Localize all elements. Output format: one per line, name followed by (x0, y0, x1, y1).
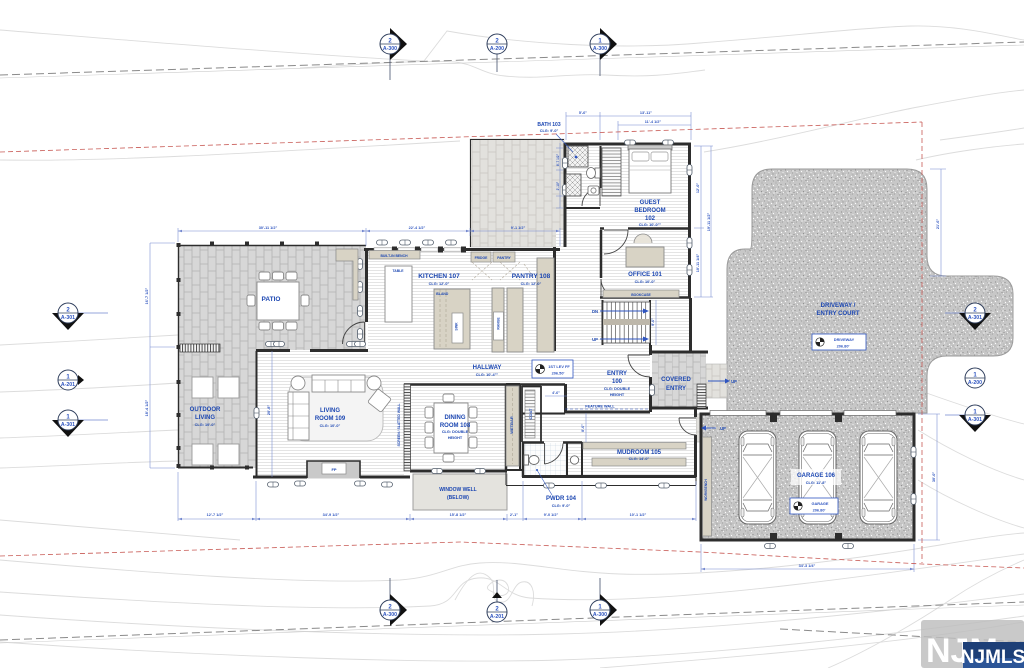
svg-text:206.50': 206.50' (552, 371, 565, 376)
svg-text:13'-11": 13'-11" (640, 111, 652, 115)
svg-text:A-300: A-300 (383, 46, 397, 52)
svg-text:UP: UP (592, 337, 598, 342)
svg-text:ISLAND: ISLAND (436, 292, 449, 296)
svg-text:FP: FP (331, 467, 336, 472)
svg-text:21'-6": 21'-6" (936, 219, 940, 230)
svg-text:CLG: 10'-0": CLG: 10'-0" (635, 280, 656, 284)
svg-text:22'-4 1/2": 22'-4 1/2" (409, 226, 426, 230)
svg-text:34'-9 1/2": 34'-9 1/2" (323, 513, 340, 517)
svg-text:COVERED: COVERED (661, 377, 691, 383)
svg-text:KITCHEN 107: KITCHEN 107 (418, 273, 460, 280)
svg-text:ENTRY: ENTRY (666, 386, 686, 392)
svg-text:OFFICE 101: OFFICE 101 (628, 272, 662, 278)
svg-text:2'-1": 2'-1" (510, 513, 518, 517)
svg-text:DRIVEWAY /: DRIVEWAY / (821, 303, 856, 309)
svg-text:BOOKCASE: BOOKCASE (631, 293, 651, 297)
svg-text:34'-3 1/4": 34'-3 1/4" (799, 564, 816, 568)
svg-text:CLG: 11'-8": CLG: 11'-8" (806, 481, 827, 485)
svg-text:DN: DN (592, 309, 598, 314)
svg-text:18'-4 1/2": 18'-4 1/2" (145, 399, 149, 416)
svg-text:HALLWAY: HALLWAY (473, 365, 502, 371)
svg-text:2'-10": 2'-10" (556, 181, 560, 190)
svg-text:A-300: A-300 (383, 612, 397, 618)
svg-text:WETBAR: WETBAR (509, 416, 514, 434)
svg-text:COAT: COAT (528, 408, 533, 420)
svg-text:206.80': 206.80' (837, 344, 850, 349)
svg-text:BUILT-IN BENCH: BUILT-IN BENCH (380, 254, 408, 258)
svg-text:PATIO: PATIO (262, 296, 281, 303)
svg-text:8'-6": 8'-6" (581, 424, 585, 432)
svg-text:10'-11 1/4": 10'-11 1/4" (696, 254, 700, 273)
svg-text:SCREEN / SLATTED WALL: SCREEN / SLATTED WALL (397, 404, 401, 447)
svg-text:FEATURE WALL: FEATURE WALL (585, 405, 615, 409)
svg-text:GUEST: GUEST (640, 200, 661, 206)
svg-text:12'-7 1/2": 12'-7 1/2" (207, 513, 224, 517)
svg-text:A-200: A-200 (490, 46, 504, 52)
svg-text:NJMLS: NJMLS (961, 647, 1024, 668)
svg-text:LIVING: LIVING (195, 415, 215, 421)
svg-text:LIVING: LIVING (320, 408, 340, 414)
svg-text:DRIVEWAY: DRIVEWAY (834, 337, 855, 342)
svg-text:A-301: A-301 (61, 315, 75, 321)
svg-text:20'-8": 20'-8" (267, 405, 271, 416)
svg-text:A-301: A-301 (61, 422, 75, 428)
svg-text:PWDR 104: PWDR 104 (546, 496, 577, 502)
svg-text:CLG: DOUBLE: CLG: DOUBLE (604, 387, 631, 391)
svg-text:12'-0": 12'-0" (696, 183, 700, 194)
svg-text:OUTDOOR: OUTDOOR (190, 407, 221, 413)
svg-text:WINDOW WELL: WINDOW WELL (439, 487, 477, 493)
svg-text:4'-6": 4'-6" (552, 391, 560, 395)
svg-text:5'-6": 5'-6" (579, 111, 587, 115)
svg-text:MUDROOM 105: MUDROOM 105 (617, 450, 662, 456)
svg-text:9'-6": 9'-6" (651, 318, 655, 326)
svg-text:A-300: A-300 (593, 46, 607, 52)
svg-text:ENTRY COURT: ENTRY COURT (816, 311, 859, 317)
svg-text:CLG: 10'-0": CLG: 10'-0" (320, 424, 341, 428)
svg-text:CLG: 12'-0": CLG: 12'-0" (521, 282, 542, 286)
svg-text:11'-4 1/2": 11'-4 1/2" (645, 120, 662, 124)
svg-text:CLG: 14'-0": CLG: 14'-0" (629, 457, 650, 461)
svg-text:PANTRY: PANTRY (497, 256, 511, 260)
svg-text:DINING: DINING (445, 415, 466, 421)
svg-text:CLG: 10'-0"": CLG: 10'-0"" (639, 223, 662, 227)
svg-text:(BELOW): (BELOW) (447, 495, 469, 501)
svg-text:8'-7 1/2": 8'-7 1/2" (556, 153, 560, 166)
svg-text:CLG: 9'-0": CLG: 9'-0" (552, 504, 571, 508)
svg-text:A-200: A-200 (968, 380, 982, 386)
svg-text:100: 100 (612, 379, 623, 385)
svg-text:9'-0 1/2": 9'-0 1/2" (544, 513, 559, 517)
svg-text:UP: UP (720, 426, 726, 431)
svg-text:15'-8 1/2": 15'-8 1/2" (450, 513, 467, 517)
svg-text:CLG: 10'-0": CLG: 10'-0" (195, 423, 216, 427)
svg-text:CLG: DOUBLE: CLG: DOUBLE (442, 430, 469, 434)
svg-text:19'-11 1/2": 19'-11 1/2" (707, 213, 711, 232)
svg-text:A-300: A-300 (593, 612, 607, 618)
svg-text:GARAGE 106: GARAGE 106 (797, 473, 836, 479)
svg-text:ROOM 108: ROOM 108 (440, 423, 471, 429)
svg-text:30'-11 1/2": 30'-11 1/2" (259, 226, 278, 230)
svg-text:16'-7 1/2": 16'-7 1/2" (145, 287, 149, 304)
svg-text:GARAGE: GARAGE (811, 501, 828, 506)
svg-text:A-301: A-301 (968, 417, 982, 423)
svg-text:SINK: SINK (455, 322, 459, 331)
svg-text:9'-1 1/2": 9'-1 1/2" (511, 226, 526, 230)
svg-text:RANGE: RANGE (497, 317, 501, 330)
svg-text:10'-1 1/2": 10'-1 1/2" (630, 513, 647, 517)
svg-text:ENTRY: ENTRY (607, 371, 627, 377)
svg-text:PANTRY 108: PANTRY 108 (512, 273, 551, 280)
svg-text:UP: UP (731, 379, 737, 384)
svg-text:206.80': 206.80' (813, 508, 826, 513)
svg-text:WORKBENCH: WORKBENCH (704, 479, 708, 501)
svg-text:BATH 103: BATH 103 (537, 122, 560, 128)
svg-text:30'-0": 30'-0" (932, 472, 936, 483)
svg-text:A-301: A-301 (968, 315, 982, 321)
svg-text:FRIDGE: FRIDGE (475, 256, 489, 260)
svg-text:102: 102 (645, 216, 656, 222)
svg-text:TABLE: TABLE (392, 269, 404, 273)
svg-text:HEIGHT: HEIGHT (448, 436, 463, 440)
svg-text:CLG: 9'-0": CLG: 9'-0" (540, 129, 559, 133)
svg-text:A-201: A-201 (490, 614, 504, 620)
svg-text:HEIGHT: HEIGHT (610, 393, 625, 397)
svg-text:1ST LEV FF: 1ST LEV FF (548, 364, 570, 369)
svg-text:BEDROOM: BEDROOM (634, 208, 665, 214)
svg-text:CLG: 12'-0": CLG: 12'-0" (429, 282, 450, 286)
svg-text:ROOM 109: ROOM 109 (315, 416, 346, 422)
svg-text:CLG: 10'-4"": CLG: 10'-4"" (476, 373, 499, 377)
svg-text:A-201: A-201 (61, 382, 75, 388)
